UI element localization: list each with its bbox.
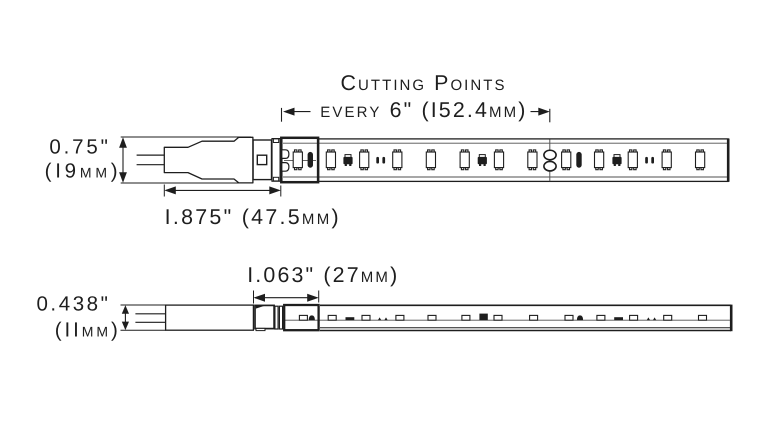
svg-text:(I9mm): (I9mm) — [45, 160, 118, 183]
svg-text:every 6" (I52.4mm): every 6" (I52.4mm) — [320, 98, 525, 122]
svg-text:Cutting Points: Cutting Points — [341, 71, 505, 95]
svg-text:I.875" (47.5mm): I.875" (47.5mm) — [165, 205, 339, 229]
svg-text:0.438": 0.438" — [36, 293, 108, 316]
